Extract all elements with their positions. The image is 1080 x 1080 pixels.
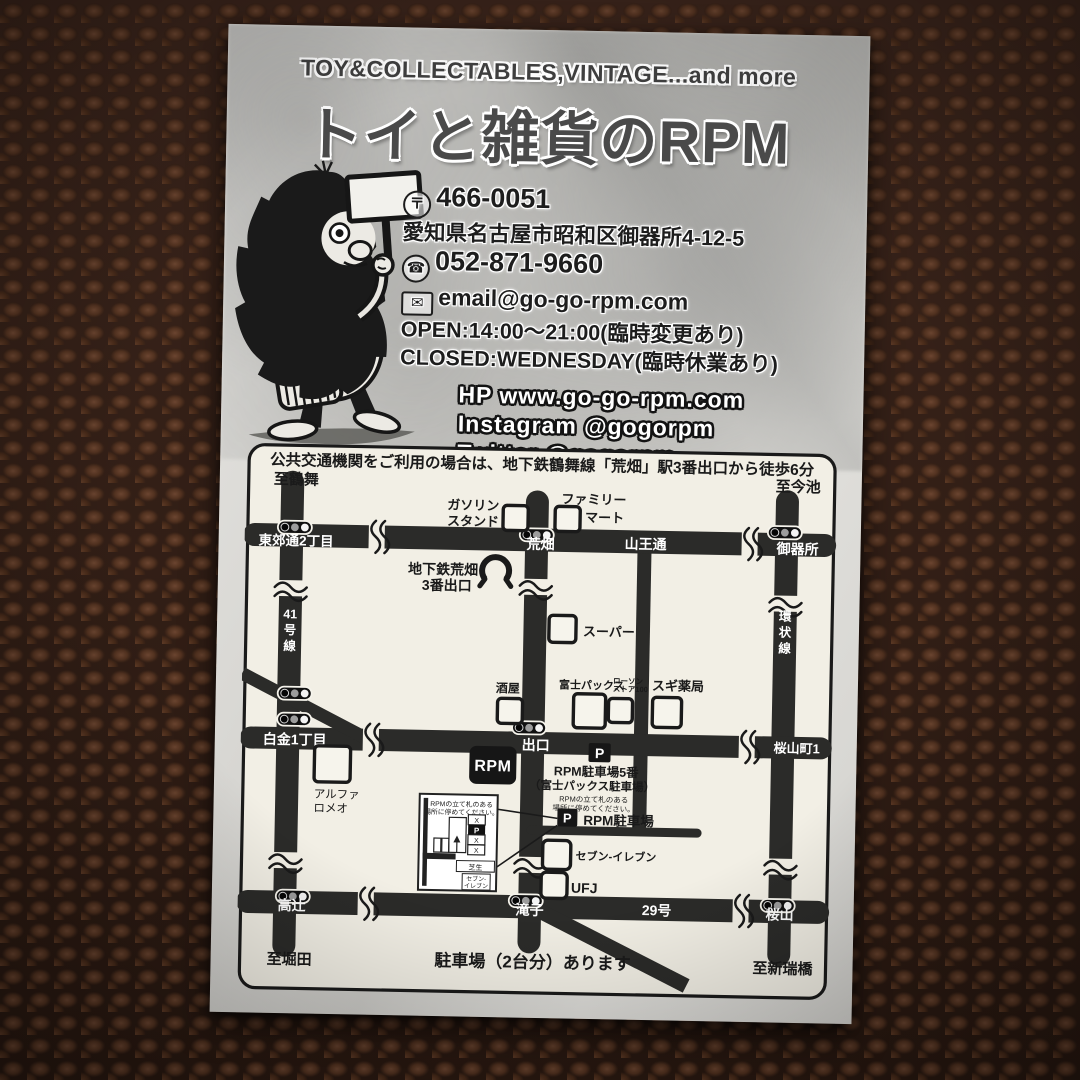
gas-stand-building (503, 505, 528, 530)
road-sanno: 山王通 (624, 536, 666, 553)
road-sakurayamacho: 桜山町1 (773, 741, 820, 757)
svg-text:線: 線 (778, 641, 791, 656)
dest-imaike: 至今池 (776, 478, 821, 497)
parking-label: RPM駐車場 (583, 812, 654, 829)
parking5-line1: RPM駐車場5番 (554, 763, 640, 780)
sugi-building (652, 697, 682, 728)
label-takiko: 滝子 (515, 902, 543, 919)
rpm-shop-label: RPM (474, 758, 511, 776)
svg-text:P: P (563, 810, 572, 825)
mail-icon: ✉ (401, 291, 433, 316)
dest-shinmizuhashi: 至新瑞橋 (752, 959, 813, 978)
familymart-label2: マート (585, 510, 624, 526)
sugi-label: スギ薬局 (652, 678, 704, 694)
alfaromeo-label2: ロメオ (313, 802, 348, 816)
phone-icon: ☎ (402, 254, 431, 283)
seveneleven-label: セブン-イレブン (576, 849, 657, 865)
label-kanjosen: 環 状 線 (778, 610, 792, 656)
svg-text:芝生: 芝生 (468, 863, 482, 872)
label-deguchi: 出口 (522, 737, 550, 754)
sakaya-building (497, 698, 522, 723)
postal-code: 466-0051 (436, 182, 551, 214)
phone-number: 052-871-9660 (435, 246, 604, 279)
alfaromeo-building (314, 746, 351, 783)
supermarket-building (549, 615, 577, 643)
svg-text:P: P (474, 826, 480, 835)
label-sakurayama: 桜山 (765, 906, 793, 923)
station-arahata: 荒畑 (525, 536, 554, 553)
parking-footer: 駐車場（2台分）あります (434, 950, 631, 974)
svg-text:状: 状 (779, 625, 792, 640)
svg-text:X: X (474, 848, 479, 855)
contact-block: 〒466-0051 愛知県名古屋市昭和区御器所4-12-5 ☎052-871-9… (400, 182, 781, 378)
sakaya-label: 酒屋 (496, 681, 520, 695)
svg-text:X: X (474, 838, 479, 845)
svg-text:41: 41 (283, 607, 297, 621)
label-route41: 41 号 線 (283, 607, 298, 653)
svg-text:P: P (595, 745, 605, 761)
subway-label1: 地下鉄荒畑 (408, 560, 478, 577)
supermarket-label: スーパー (583, 624, 635, 640)
fujipax-building (573, 694, 606, 729)
svg-text:環: 環 (779, 610, 792, 624)
gas-stand-label1: ガソリン (447, 497, 499, 513)
station-gokiso: 御器所 (775, 541, 818, 558)
ufj-label: UFJ (571, 880, 598, 897)
road-tokogo: 東郊通2丁目 (258, 532, 333, 549)
familymart-label1: ファミリー (561, 491, 626, 507)
gas-stand-label2: スタンド (447, 513, 499, 529)
svg-text:号: 号 (284, 622, 297, 637)
seveneleven-building (542, 840, 571, 870)
ufj-building (541, 872, 567, 898)
familymart-building (555, 506, 580, 531)
svg-text:X: X (474, 818, 479, 825)
dest-tsurumai: 至鶴舞 (274, 470, 319, 489)
lawson-label2: ストア100 (613, 684, 648, 694)
label-route29: 29号 (642, 902, 672, 919)
subway-label2: 3番出口 (422, 577, 472, 594)
lawson-building (608, 698, 632, 722)
alfaromeo-label1: アルファ (314, 789, 360, 802)
label-takatsuji: 高辻 (277, 897, 305, 914)
flyer: TOY&COLLECTABLES,VINTAGE...and more トイと雑… (210, 24, 871, 1024)
dest-horita: 至堀田 (266, 951, 311, 969)
email-address: email@go-go-rpm.com (438, 284, 688, 315)
svg-text:線: 線 (283, 638, 296, 653)
postal-mark-icon: 〒 (403, 190, 432, 219)
access-map: 公共交通機関をご利用の場合は、地下鉄鶴舞線「荒畑」駅3番出口から徒歩6分 (236, 441, 838, 1001)
